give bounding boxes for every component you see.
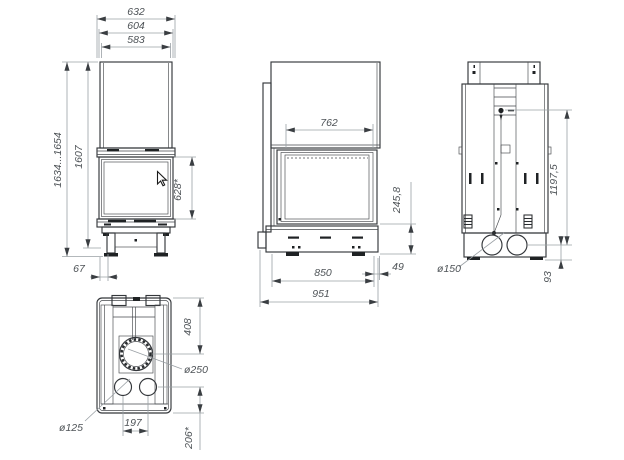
top-right-duct-circle (140, 379, 157, 396)
front-casing (100, 62, 172, 148)
dim-rear-duct-diameter: ø150 (437, 233, 504, 275)
dim-label-245-8: 245,8 (391, 187, 403, 214)
front-view: 583 604 632 1634...1654 (52, 6, 196, 281)
dim-front-width-glass: 583 (102, 34, 171, 58)
rear-left-duct-circle (482, 235, 502, 255)
front-glass-door (97, 157, 175, 227)
dim-label-604: 604 (127, 20, 145, 32)
rear-right-spring (524, 215, 532, 228)
dim-top-flue-axis-offset: 408 (152, 298, 204, 354)
side-casing (271, 62, 380, 148)
dim-label-762: 762 (320, 117, 338, 129)
side-back-panel (263, 83, 271, 232)
side-rear-box (258, 232, 266, 248)
top-duct-circles (115, 379, 157, 396)
dim-top-duct-axis-offset: 206* (158, 387, 204, 450)
top-left-rail (101, 305, 113, 404)
dim-label-67: 67 (73, 263, 86, 275)
dim-label-850: 850 (314, 267, 332, 279)
top-dimensions: 408 ø250 197 206* ø125 (59, 298, 208, 450)
top-left-duct-circle (115, 379, 132, 396)
dim-side-base-height: 245,8 (380, 182, 416, 254)
dim-label-632: 632 (127, 6, 145, 18)
dim-side-depth-top: 762 (286, 117, 373, 148)
top-view: 408 ø250 197 206* ø125 (59, 296, 208, 451)
side-front-foot (286, 252, 299, 256)
side-view: 762 245,8 850 49 (258, 62, 416, 307)
rear-damper-knob (498, 108, 503, 113)
rear-view: 1197,5 93 ø150 (437, 62, 572, 283)
dim-front-glass-height: 628* (172, 157, 196, 219)
rear-right-foot (530, 257, 543, 260)
dim-label-d250: ø250 (184, 364, 208, 376)
dim-label-628: 628* (172, 178, 184, 201)
dim-label-951: 951 (312, 288, 330, 300)
dim-label-1634-1654: 1634...1654 (52, 132, 64, 188)
dim-label-197: 197 (124, 417, 143, 429)
side-glass (274, 148, 377, 226)
technical-drawing-canvas: 583 604 632 1634...1654 (0, 0, 624, 460)
front-left-foot (104, 253, 118, 257)
dim-label-1607: 1607 (73, 144, 85, 169)
dim-top-duct-spacing: 197 (123, 396, 148, 436)
rear-right-duct-circle (507, 235, 527, 255)
dim-top-duct-diameter: ø125 (59, 379, 130, 434)
dim-label-1197-5: 1197,5 (548, 164, 560, 195)
dim-label-93: 93 (542, 271, 554, 283)
front-lintel (97, 148, 175, 157)
front-dimensions: 583 604 632 1634...1654 (52, 6, 196, 281)
side-rear-foot (352, 252, 365, 256)
front-right-foot (154, 253, 168, 257)
rear-top-box (468, 62, 540, 84)
mouse-cursor-icon (158, 172, 167, 186)
dim-front-width-total: 632 (97, 6, 175, 58)
fireplace-technical-drawing: 583 604 632 1634...1654 (0, 0, 624, 460)
dim-front-leg-offset: 67 (73, 254, 118, 281)
dim-label-408: 408 (182, 318, 194, 336)
dim-label-583: 583 (127, 34, 145, 46)
dim-label-d150: ø150 (437, 263, 461, 275)
rear-body (459, 84, 551, 235)
dim-label-d125: ø125 (59, 422, 83, 434)
side-dimensions: 762 245,8 850 49 (260, 117, 416, 307)
dim-label-49: 49 (392, 261, 404, 273)
rear-base (464, 233, 546, 260)
front-base (102, 227, 170, 257)
dim-side-depth-base: 850 (272, 254, 374, 287)
top-flue-outlet (119, 336, 153, 373)
dim-side-rear-gap: 49 (362, 256, 404, 280)
dim-label-206: 206* (183, 426, 195, 450)
side-base (258, 226, 378, 256)
dim-top-flue-diameter: ø250 (128, 349, 208, 376)
